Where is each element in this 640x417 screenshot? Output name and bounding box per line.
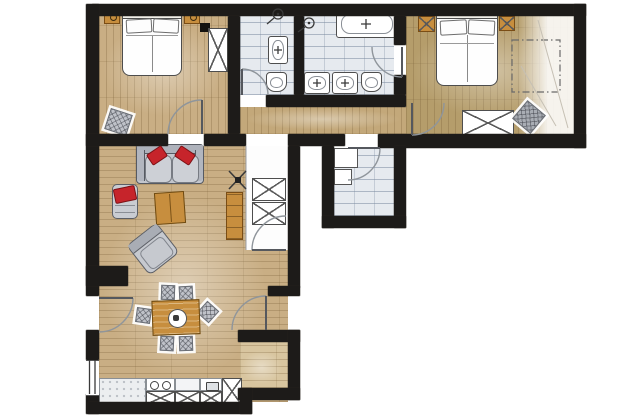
shelf-unit (334, 148, 358, 168)
wardrobe-bedroom-2 (462, 110, 514, 136)
bed-fold-line (440, 43, 494, 44)
bed-pillow (440, 19, 468, 35)
lounge-chair-line (115, 212, 135, 213)
shelf-cabinet (226, 192, 243, 240)
basin (308, 76, 326, 90)
alcove-floor (240, 342, 288, 388)
wall-stub-living (86, 266, 128, 286)
wall-band-b (204, 134, 246, 146)
bed-fold-line (126, 35, 178, 36)
washbasin-shower-room (268, 36, 288, 64)
closet-wardrobe (252, 178, 286, 201)
floor-plan (0, 0, 640, 417)
basin (272, 40, 284, 60)
wall-bathroom-right-b (394, 75, 406, 95)
dining-table (151, 299, 200, 336)
dining-chair (161, 285, 176, 300)
dining-chair (179, 336, 194, 351)
bed-pillow (153, 18, 180, 33)
dining-chair (160, 336, 175, 352)
basin (336, 76, 354, 90)
coffee-table-split (169, 194, 172, 222)
sink-bowl (162, 381, 171, 390)
dining-chair (135, 307, 152, 324)
kitchen-counter-mid (175, 378, 200, 391)
kitchen-cooktop (200, 378, 222, 391)
wall-top (92, 4, 586, 16)
wall-band-a (86, 134, 168, 146)
wall-kitchen-bottom (88, 402, 252, 414)
sofa (136, 144, 204, 184)
cooktop-panel (206, 382, 219, 391)
left-window (86, 360, 99, 396)
nightstand (499, 16, 515, 31)
bed-pillow (126, 18, 153, 33)
nightstand (418, 16, 435, 32)
closet-wardrobe (252, 202, 286, 225)
wall-bath-bottom (266, 95, 406, 107)
wall-band-c (288, 134, 345, 146)
wall-bath-divider (294, 16, 304, 95)
wall-left-upper (86, 4, 99, 296)
washbasin-left (304, 72, 330, 94)
wall-living-east (288, 146, 300, 288)
centerpiece-bowl (173, 314, 179, 320)
kitchen-counter-left (99, 378, 146, 405)
wardrobe-bedroom-1 (208, 28, 228, 72)
wall-band-d (378, 134, 586, 148)
toilet-shower-room (266, 72, 287, 92)
bathtub-inner (341, 14, 393, 34)
toilet-bowl (365, 77, 378, 88)
wall-left-mid (86, 330, 99, 360)
sofa-arm (137, 150, 145, 181)
hallway-floor (240, 107, 406, 134)
sink-bowl (150, 381, 159, 390)
wall-jog (240, 388, 252, 414)
coffee-table (154, 191, 186, 225)
wall-right (574, 4, 586, 148)
toilet-bathroom (361, 72, 382, 92)
table-centerpiece (167, 309, 187, 329)
toilet-bowl (270, 77, 283, 88)
bed-center-split (152, 35, 153, 72)
wall-utility-bottom (322, 216, 406, 228)
shelf-unit (334, 169, 352, 185)
lounge-chair-line (115, 205, 135, 206)
bed-pillow (468, 19, 496, 35)
kitchen-sink-unit (146, 378, 175, 391)
wall-bathroom-right-a (394, 16, 406, 45)
wall-entry-pier (268, 286, 300, 296)
washbasin-right (332, 72, 358, 94)
wall-bedroom-1-right (228, 16, 240, 134)
